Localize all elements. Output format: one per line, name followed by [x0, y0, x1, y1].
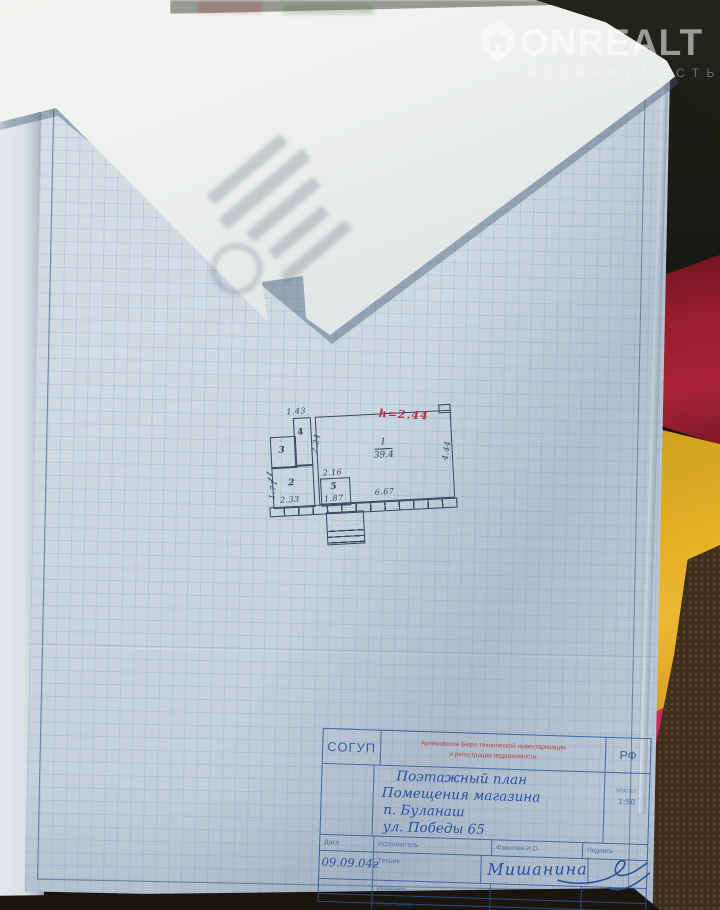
dim-room5-bottom: 1.87 — [324, 493, 344, 503]
empty-cell — [319, 879, 373, 895]
dim-room4-top: 1.43 — [286, 406, 306, 416]
signature-flourish — [556, 852, 653, 893]
org-abbreviation: СОГУП — [323, 729, 382, 765]
wall-notch — [438, 404, 450, 414]
room-3-number: 3 — [278, 445, 285, 455]
header-date: Дата — [320, 835, 374, 852]
room-1-area: 39.4 — [369, 450, 399, 462]
brand-subtitle: НЕДВИЖИМОСТЬ — [528, 66, 720, 80]
title-block: СОГУП Артемовское Бюро технической инвен… — [317, 728, 651, 910]
room-1-label: 1 39.4 — [368, 437, 399, 462]
empty-cell — [320, 764, 374, 836]
scale-value: 1:50 — [605, 796, 649, 807]
role-technician: Техник — [373, 853, 481, 883]
dim-room1-bottom: 6.67 — [375, 487, 395, 497]
signature-cell — [588, 859, 647, 888]
porch-steps — [327, 524, 364, 544]
scale-label: Масшт. — [616, 787, 638, 795]
brand-name: ONREALT — [520, 24, 703, 61]
org-name-line2: и регистрации недвижимости — [449, 750, 537, 762]
ceiling-height-note: h=2.44 — [378, 407, 429, 423]
date-value: 09.09.04г — [319, 851, 374, 880]
watermark-logo: ONREALT НЕДВИЖИМОСТЬ — [476, 20, 720, 80]
house-pin-icon — [476, 20, 520, 64]
role-chief: Начальник — [372, 896, 490, 910]
floor-plan-drawing: 1.43 4 2.24 3 2 1.71 2.33 2.16 5 1.87 1 … — [262, 395, 480, 561]
document-title: Поэтажный план Помещения магазина п. Бул… — [372, 766, 605, 843]
room-5-number: 5 — [330, 482, 337, 492]
faint-green-stamp-trace — [282, 4, 374, 14]
room-1-number: 1 — [368, 437, 398, 449]
dim-room2-bottom: 2.33 — [280, 495, 300, 505]
room-2-number: 2 — [288, 478, 295, 488]
org-country: РФ — [606, 738, 651, 773]
empty-cell — [490, 899, 581, 910]
faint-red-stamp-trace — [198, 2, 262, 13]
empty-cell — [581, 902, 645, 910]
entrance-porch — [326, 510, 366, 545]
empty-cell — [318, 894, 372, 910]
dim-room5-top: 2.16 — [322, 468, 342, 478]
org-name: Артемовское Бюро технической инвентариза… — [381, 731, 607, 772]
scale-cell: Масшт. 1:50 — [603, 773, 649, 844]
photo-of-floor-plan-document: 1.43 4 2.24 3 2 1.71 2.33 2.16 5 1.87 1 … — [0, 0, 720, 910]
